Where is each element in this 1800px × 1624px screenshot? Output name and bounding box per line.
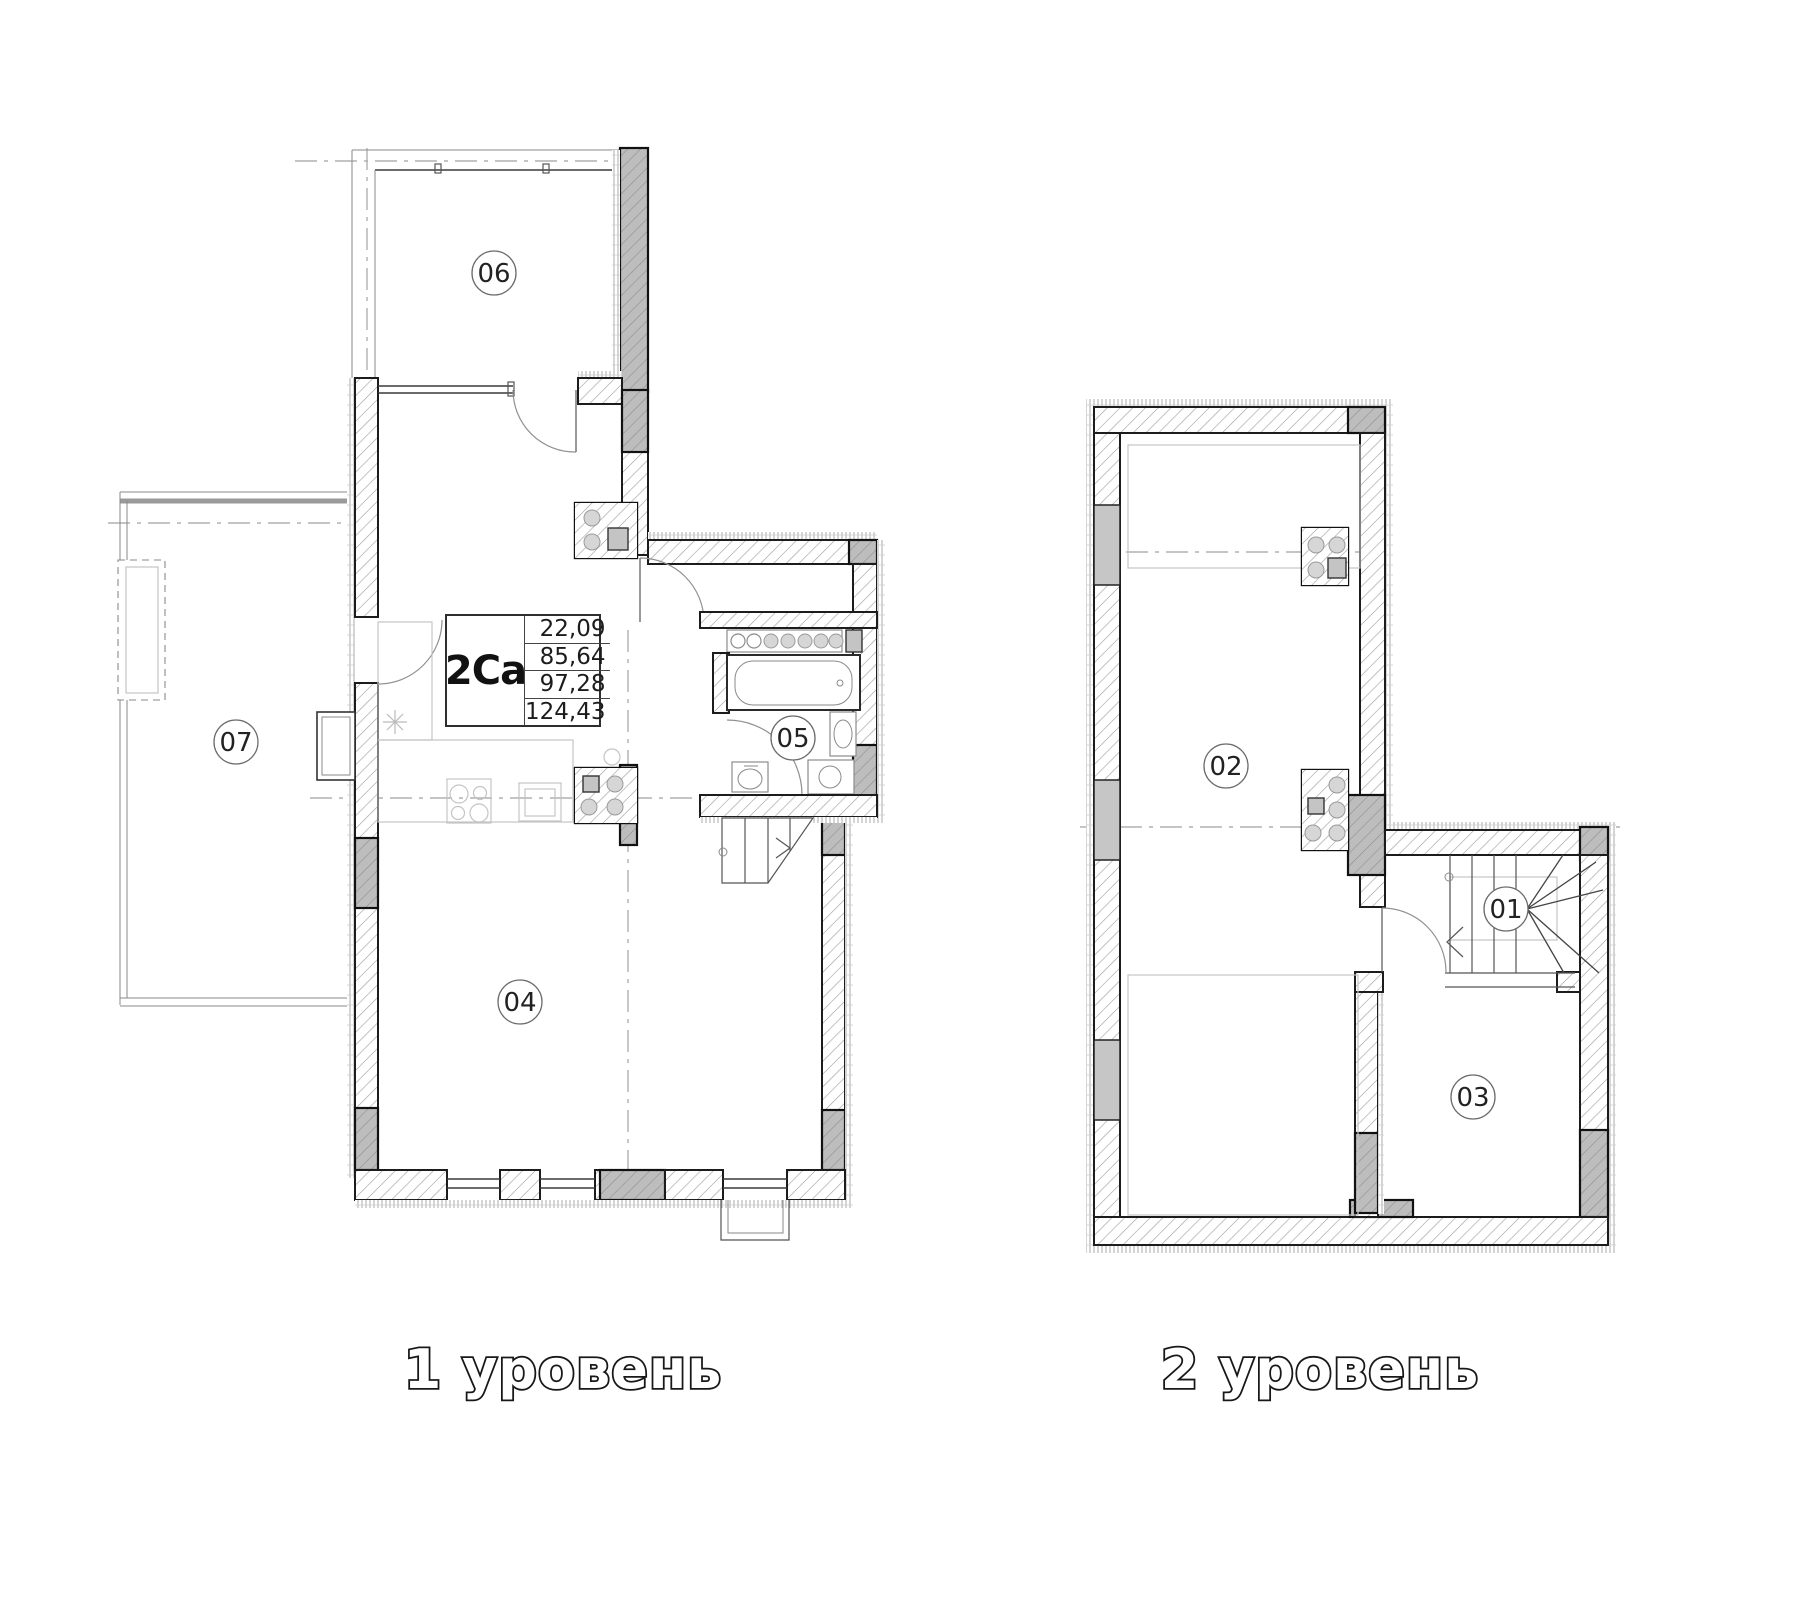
- area-value-4: 124,43: [525, 698, 610, 726]
- apartment-info-table: 2Ca 22,09 85,64 97,28 124,43: [445, 614, 601, 727]
- room-number: 03: [1456, 1083, 1489, 1113]
- extract-symbol: [383, 710, 407, 734]
- fridge-icon: [317, 712, 355, 780]
- stove-icon: [447, 779, 491, 823]
- kitchen-sink-icon: [519, 783, 561, 821]
- level1-doors: [378, 390, 802, 795]
- level2-walls: [1086, 399, 1616, 1253]
- room-label-01: 01: [1484, 887, 1528, 931]
- area-values: 22,09 85,64 97,28 124,43: [525, 616, 610, 725]
- bathtub-icon: [727, 655, 860, 710]
- room-label-02: 02: [1204, 744, 1248, 788]
- shaft-level2-top: [1302, 528, 1348, 585]
- area-value-1: 22,09: [525, 616, 610, 643]
- room-number: 07: [219, 728, 252, 758]
- apartment-type-label: 2Ca: [447, 616, 525, 725]
- shaft-level2-mid: [1302, 770, 1348, 850]
- towel-radiator-icon: [727, 630, 862, 652]
- level2-plan: 02 01 03: [1080, 399, 1620, 1253]
- washing-machine-icon: [808, 760, 854, 794]
- area-value-3: 97,28: [525, 670, 610, 698]
- room-number: 04: [503, 988, 536, 1018]
- level2-caption: 2 уровень: [1161, 1338, 1480, 1401]
- toilet-icon: [732, 762, 768, 792]
- level2-doors: [1382, 908, 1446, 972]
- room-number: 02: [1209, 752, 1242, 782]
- washbasin-icon: [830, 712, 856, 756]
- area-value-2: 85,64: [525, 643, 610, 671]
- room-label-03: 03: [1451, 1075, 1495, 1119]
- room-number: 01: [1489, 895, 1522, 925]
- floorplan-canvas: 06 07 05 04: [0, 0, 1800, 1624]
- room-number: 05: [776, 724, 809, 754]
- room-label-05: 05: [771, 716, 815, 760]
- room-number: 06: [477, 259, 510, 289]
- stairs-level1: [719, 818, 813, 883]
- room-label-06: 06: [472, 251, 516, 295]
- level1-caption: 1 уровень: [404, 1338, 723, 1401]
- floorplan-drawing: 06 07 05 04: [0, 0, 1800, 1624]
- axis-lines-level2: [1080, 552, 1620, 1218]
- room-label-04: 04: [498, 980, 542, 1024]
- room-label-07: 07: [214, 720, 258, 764]
- shaft-top: [575, 503, 637, 558]
- shaft-kitchen: [575, 768, 637, 823]
